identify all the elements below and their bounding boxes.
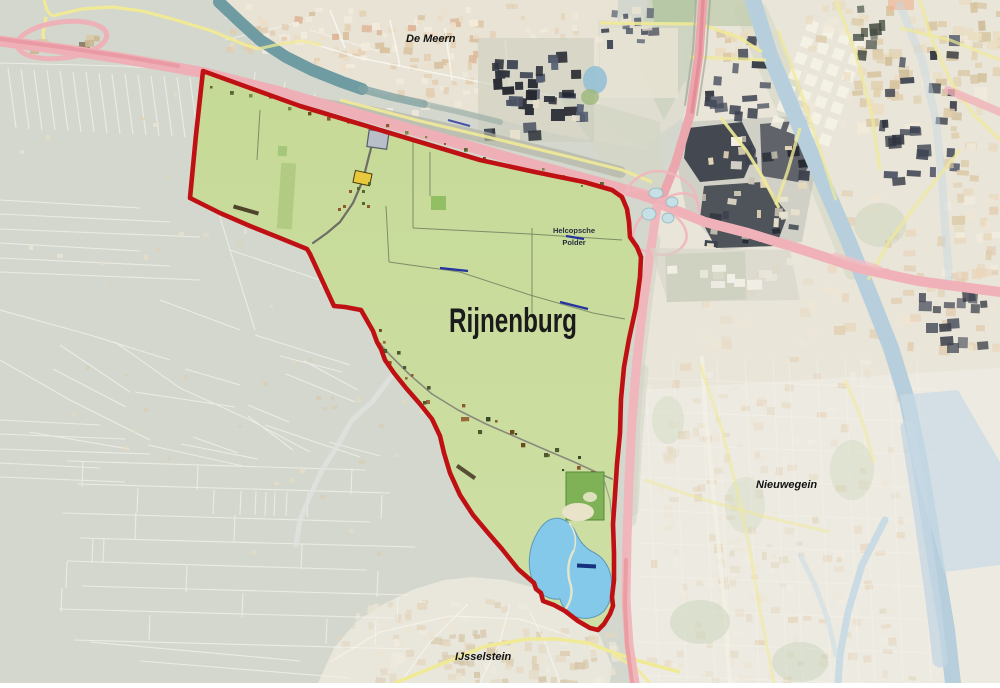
svg-text:Rijnenburg: Rijnenburg: [449, 302, 577, 340]
svg-text:Helcopsche: Helcopsche: [553, 226, 595, 235]
svg-text:IJsselstein: IJsselstein: [455, 651, 512, 663]
svg-text:Polder: Polder: [562, 238, 585, 247]
svg-text:Nieuwegein: Nieuwegein: [756, 479, 817, 491]
svg-text:De Meern: De Meern: [406, 33, 456, 45]
